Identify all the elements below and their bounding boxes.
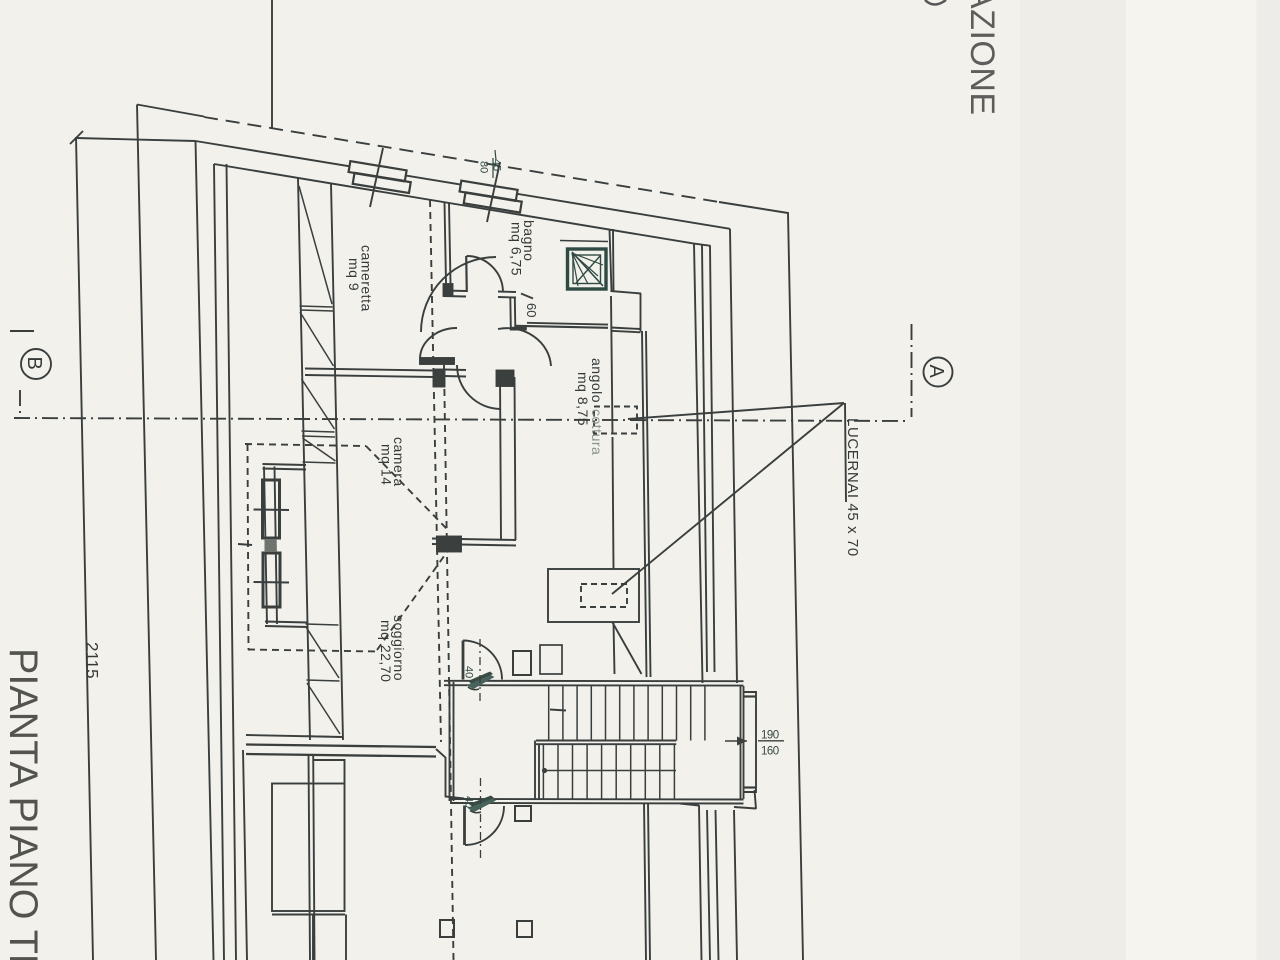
svg-text:80: 80 — [478, 161, 490, 173]
svg-text:160: 160 — [761, 746, 779, 758]
svg-text:PIANTA PIANO TERRA: PIANTA PIANO TERRA — [1, 648, 45, 960]
svg-text:B: B — [23, 357, 45, 370]
svg-text:190: 190 — [761, 730, 779, 742]
svg-text:mq 6,75: mq 6,75 — [509, 222, 525, 276]
svg-text:2115: 2115 — [83, 642, 102, 679]
svg-text:LUCERNAI 45 x 70: LUCERNAI 45 x 70 — [844, 418, 861, 557]
svg-text:mq 14: mq 14 — [379, 444, 395, 485]
svg-text:40: 40 — [463, 796, 475, 808]
svg-text:40: 40 — [463, 666, 475, 678]
svg-text:A: A — [925, 365, 947, 379]
svg-text:mq 9: mq 9 — [346, 258, 362, 291]
svg-text:60: 60 — [524, 303, 539, 317]
svg-text:45: 45 — [491, 159, 503, 171]
svg-text:mq 22,70: mq 22,70 — [378, 620, 394, 682]
svg-text:mq 8,75: mq 8,75 — [575, 372, 591, 426]
svg-text:AZIONE: AZIONE — [963, 0, 1001, 116]
